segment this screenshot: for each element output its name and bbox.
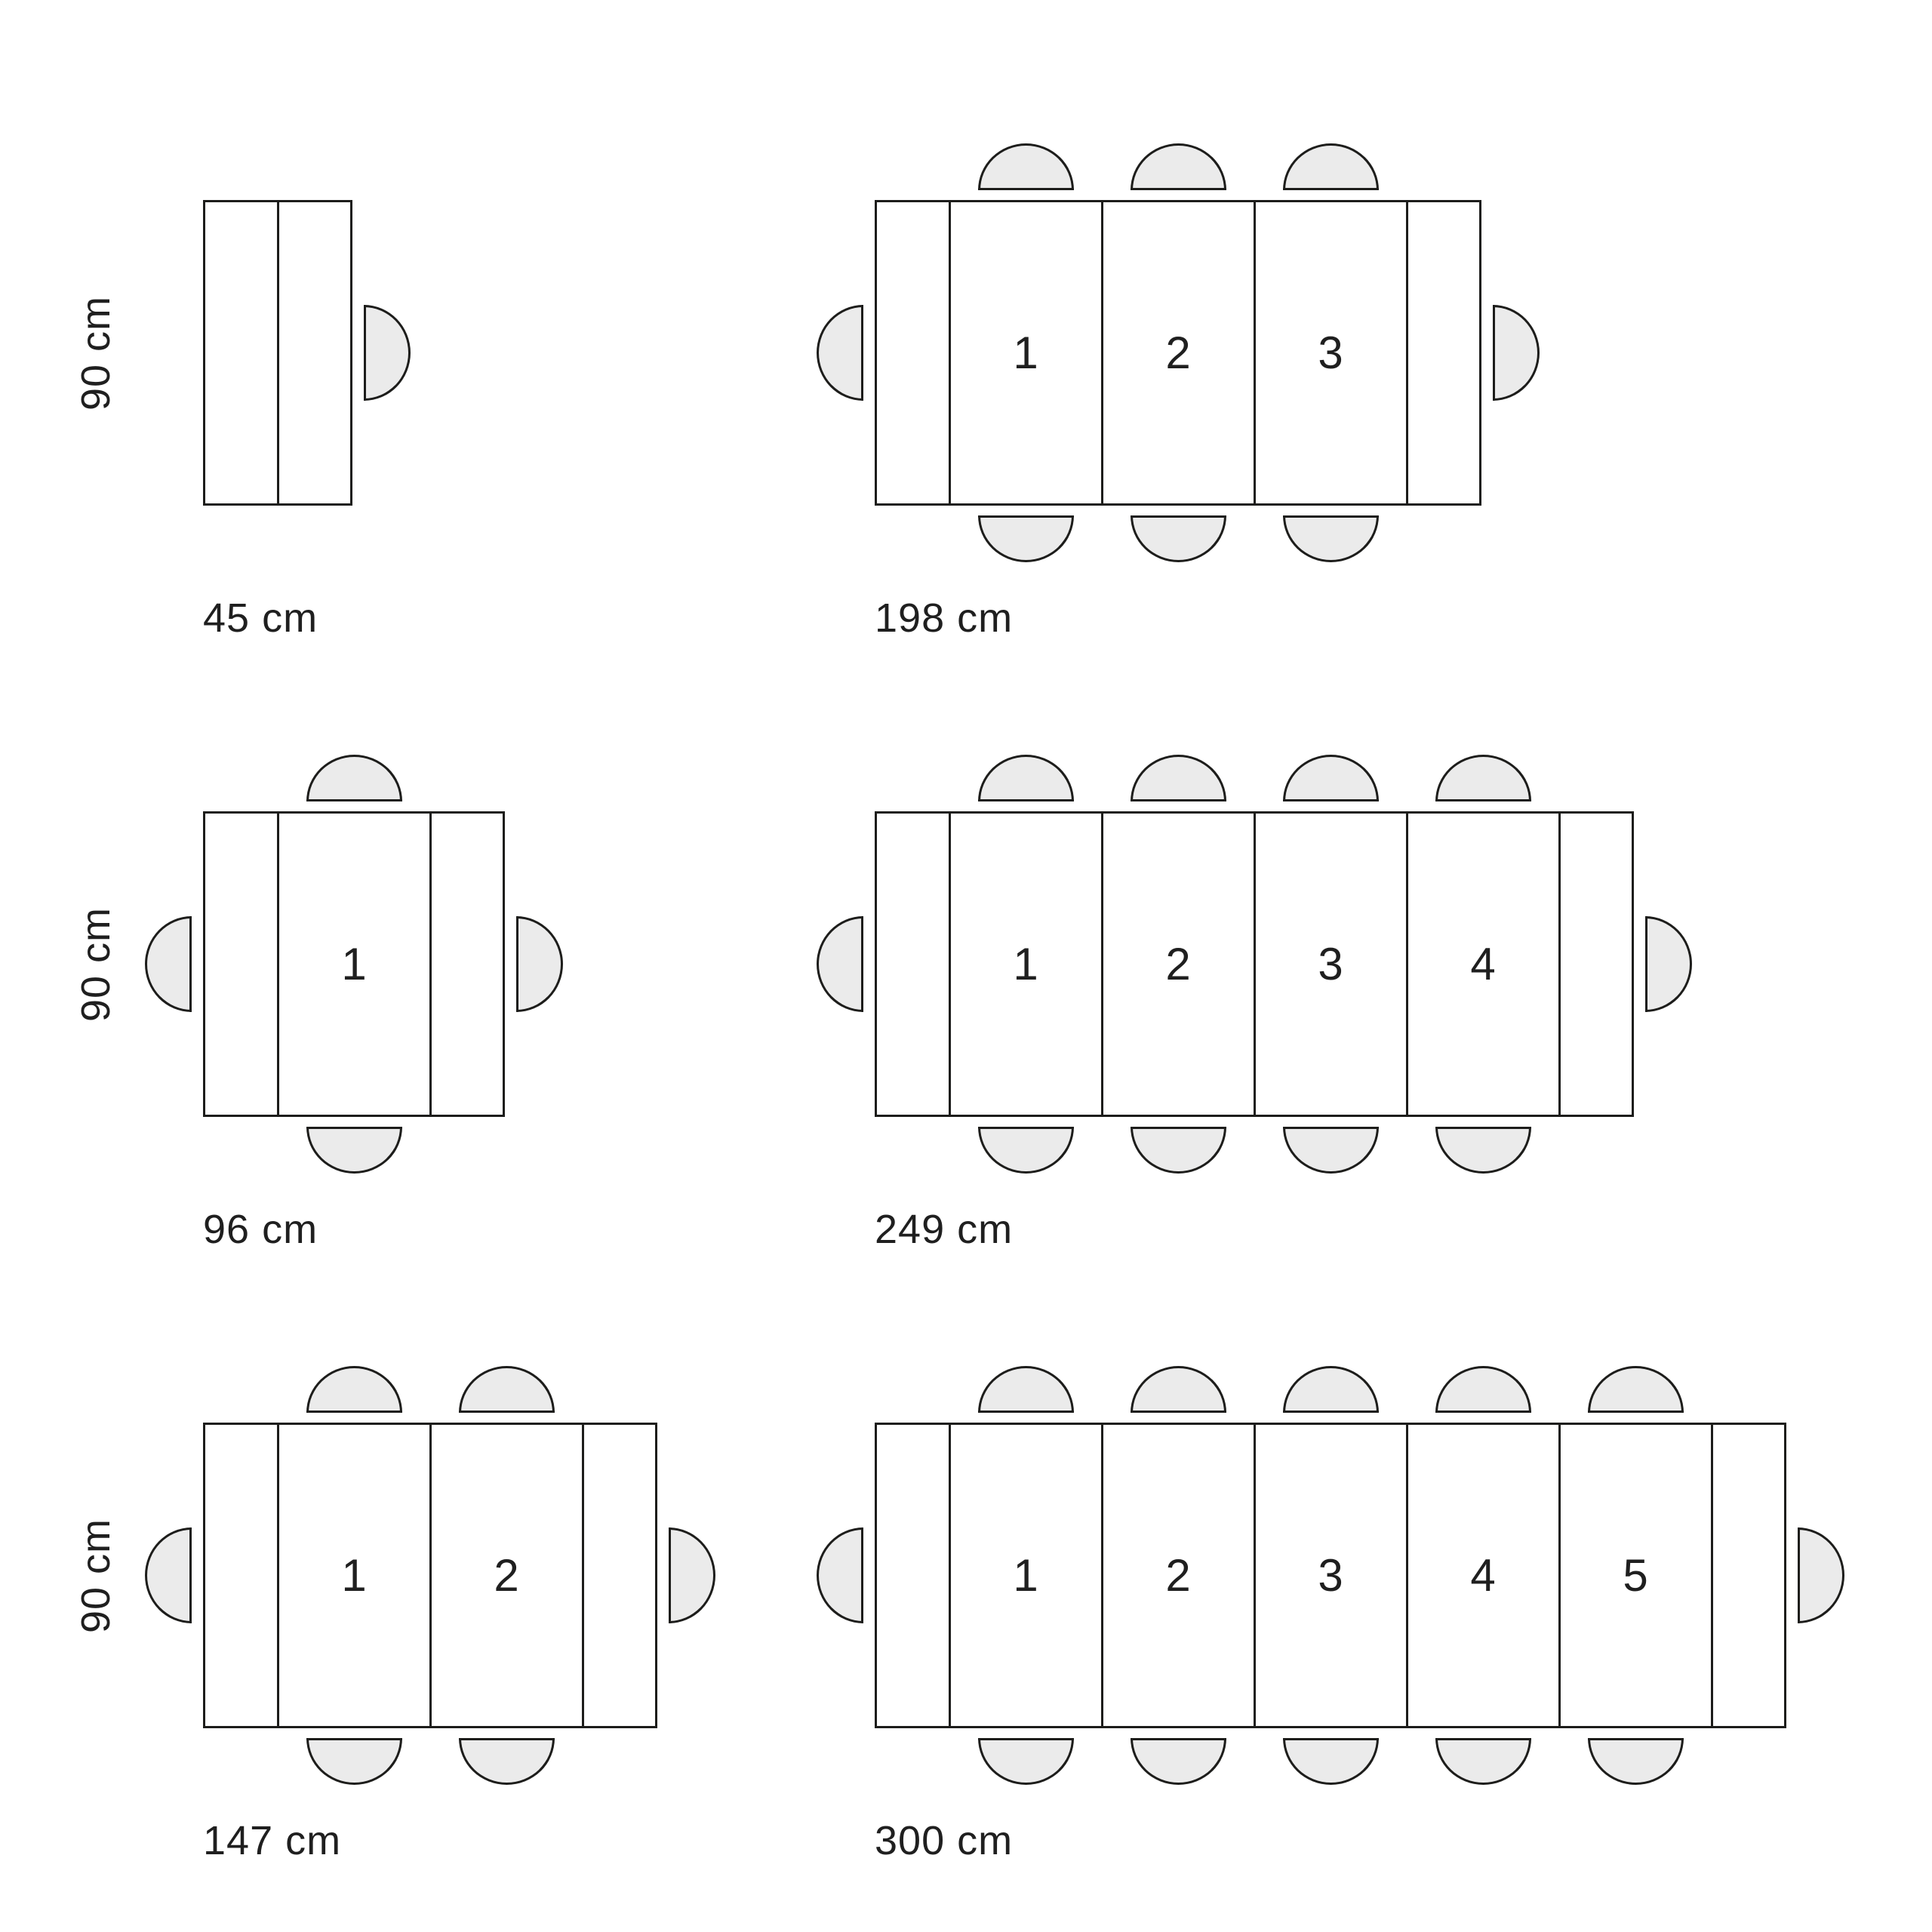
table-divider — [582, 1425, 584, 1726]
chair-right — [516, 916, 563, 1012]
chair-top — [306, 755, 402, 801]
table-size-label: 96 cm — [203, 1206, 318, 1253]
chair-bottom — [1588, 1738, 1684, 1785]
table-divider — [949, 202, 951, 503]
chair-bottom — [1435, 1127, 1531, 1174]
table-size-label: 249 cm — [875, 1206, 1013, 1253]
chair-bottom — [1283, 515, 1379, 562]
leaf-number: 1 — [1013, 1553, 1038, 1598]
leaf-number: 5 — [1623, 1553, 1647, 1598]
chair-top — [1435, 755, 1531, 801]
table-divider — [277, 814, 279, 1115]
chair-top — [978, 1366, 1074, 1413]
table-divider — [277, 202, 279, 503]
chair-bottom — [1435, 1738, 1531, 1785]
leaf-number: 4 — [1470, 942, 1495, 987]
chair-bottom — [1131, 1738, 1226, 1785]
chair-right — [1645, 916, 1692, 1012]
table-divider — [1558, 1425, 1561, 1726]
leaf-number: 3 — [1318, 331, 1343, 376]
leaf-number: 2 — [1165, 942, 1190, 987]
leaf-number: 2 — [1165, 331, 1190, 376]
leaf-number: 2 — [494, 1553, 518, 1598]
chair-bottom — [459, 1738, 555, 1785]
leaf-number: 1 — [1013, 331, 1038, 376]
chair-right — [1798, 1527, 1844, 1623]
table-size-label: 45 cm — [203, 595, 318, 641]
chair-top — [1435, 1366, 1531, 1413]
row-depth-label: 90 cm — [72, 844, 119, 1085]
chair-bottom — [978, 515, 1074, 562]
leaf-number: 1 — [341, 1553, 366, 1598]
chair-bottom — [978, 1127, 1074, 1174]
table-divider — [1406, 1425, 1408, 1726]
chair-top — [978, 143, 1074, 190]
chair-top — [978, 755, 1074, 801]
chair-bottom — [306, 1127, 402, 1174]
table-size-label: 147 cm — [203, 1817, 341, 1864]
table-divider — [1711, 1425, 1713, 1726]
chair-bottom — [1283, 1127, 1379, 1174]
chair-right — [364, 305, 411, 401]
leaf-number: 4 — [1470, 1553, 1495, 1598]
chair-top — [1131, 755, 1226, 801]
chair-bottom — [978, 1738, 1074, 1785]
table-divider — [429, 814, 432, 1115]
chair-bottom — [306, 1738, 402, 1785]
row-depth-label: 90 cm — [72, 1455, 119, 1697]
table-divider — [1558, 814, 1561, 1115]
table-size-label: 300 cm — [875, 1817, 1013, 1864]
chair-right — [669, 1527, 715, 1623]
chair-top — [1131, 1366, 1226, 1413]
chair-top — [1283, 755, 1379, 801]
chair-right — [1493, 305, 1540, 401]
table-divider — [1254, 202, 1256, 503]
chair-left — [145, 916, 192, 1012]
table-divider — [1101, 1425, 1103, 1726]
chair-top — [1283, 143, 1379, 190]
table-divider — [1254, 1425, 1256, 1726]
table-divider — [1101, 814, 1103, 1115]
leaf-number: 1 — [341, 942, 366, 987]
table-size-label: 198 cm — [875, 595, 1013, 641]
row-depth-label: 90 cm — [72, 232, 119, 474]
table-divider — [949, 1425, 951, 1726]
table-divider — [949, 814, 951, 1115]
table-divider — [429, 1425, 432, 1726]
table-size-diagram: 90 cm45 cm123198 cm90 cm196 cm1234249 cm… — [0, 0, 1932, 1932]
chair-left — [145, 1527, 192, 1623]
table-divider — [1101, 202, 1103, 503]
table-divider — [1254, 814, 1256, 1115]
chair-top — [306, 1366, 402, 1413]
table-divider — [1406, 814, 1408, 1115]
leaf-number: 3 — [1318, 942, 1343, 987]
table-divider — [277, 1425, 279, 1726]
leaf-number: 3 — [1318, 1553, 1343, 1598]
chair-left — [817, 916, 863, 1012]
chair-top — [1283, 1366, 1379, 1413]
chair-left — [817, 1527, 863, 1623]
leaf-number: 2 — [1165, 1553, 1190, 1598]
chair-bottom — [1283, 1738, 1379, 1785]
chair-top — [459, 1366, 555, 1413]
chair-bottom — [1131, 515, 1226, 562]
chair-top — [1588, 1366, 1684, 1413]
chair-top — [1131, 143, 1226, 190]
chair-left — [817, 305, 863, 401]
leaf-number: 1 — [1013, 942, 1038, 987]
chair-bottom — [1131, 1127, 1226, 1174]
table-divider — [1406, 202, 1408, 503]
